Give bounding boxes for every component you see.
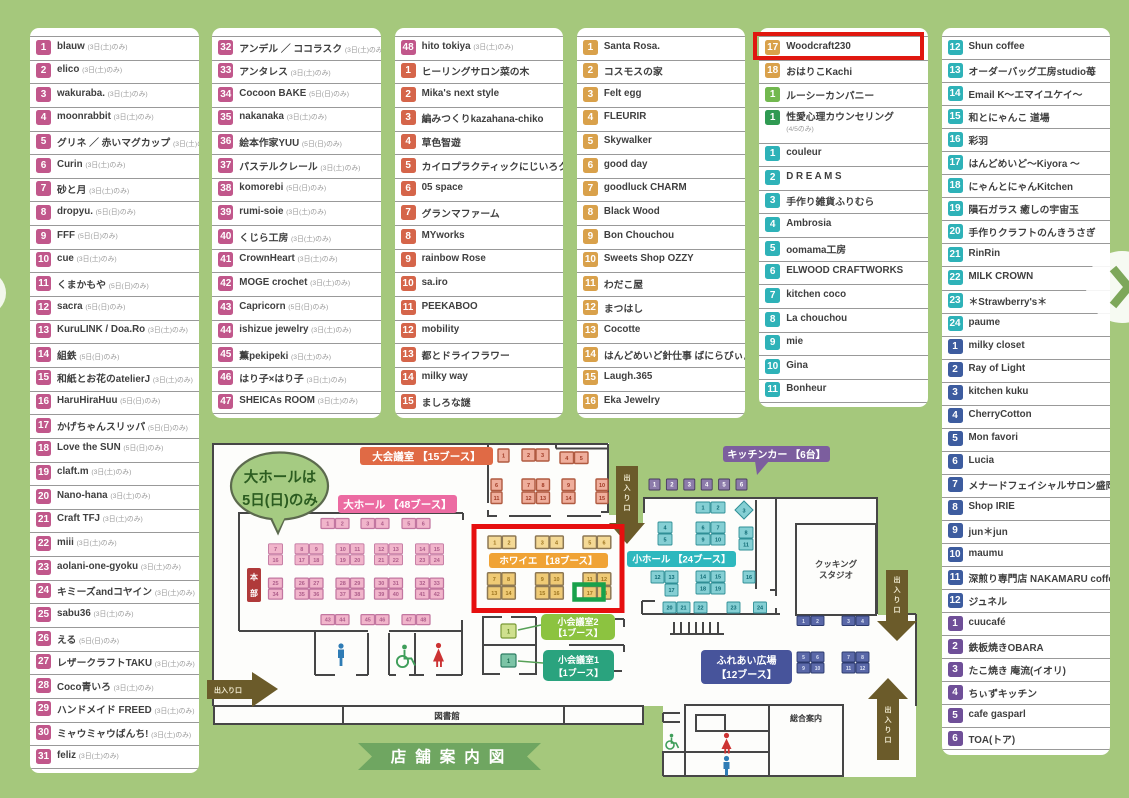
- svg-text:12: 12: [525, 496, 531, 502]
- svg-text:10: 10: [553, 577, 559, 583]
- svg-text:11: 11: [743, 543, 749, 549]
- svg-text:本: 本: [249, 572, 258, 582]
- svg-text:1: 1: [502, 454, 505, 460]
- svg-text:20: 20: [354, 558, 360, 564]
- svg-text:【12ブース】: 【12ブース】: [716, 668, 777, 681]
- svg-text:5: 5: [802, 655, 805, 661]
- svg-text:【1ブース】: 【1ブース】: [554, 667, 604, 678]
- svg-text:7: 7: [274, 547, 277, 553]
- svg-text:スタジオ: スタジオ: [819, 570, 853, 580]
- svg-text:5日(日)のみ: 5日(日)のみ: [242, 492, 318, 509]
- svg-text:8: 8: [507, 577, 510, 583]
- svg-text:出: 出: [894, 575, 901, 584]
- svg-text:11: 11: [846, 666, 852, 672]
- svg-text:21: 21: [680, 606, 686, 612]
- svg-text:1: 1: [701, 506, 704, 512]
- svg-text:3: 3: [847, 619, 850, 625]
- svg-text:口: 口: [624, 504, 631, 512]
- svg-text:34: 34: [272, 592, 279, 598]
- svg-text:11: 11: [494, 496, 500, 502]
- svg-text:36: 36: [313, 592, 319, 598]
- svg-text:16: 16: [553, 591, 559, 597]
- svg-text:11: 11: [587, 577, 593, 583]
- svg-text:14: 14: [700, 575, 707, 581]
- svg-text:4: 4: [861, 619, 864, 625]
- svg-text:8: 8: [541, 483, 544, 489]
- svg-text:3: 3: [366, 522, 369, 528]
- svg-text:44: 44: [339, 618, 346, 624]
- svg-text:10: 10: [715, 538, 721, 544]
- svg-text:5: 5: [588, 540, 591, 546]
- svg-text:入: 入: [884, 716, 892, 724]
- svg-text:26: 26: [299, 581, 305, 587]
- svg-text:28: 28: [340, 581, 346, 587]
- svg-text:2: 2: [716, 506, 719, 512]
- svg-text:3: 3: [541, 540, 544, 546]
- svg-text:47: 47: [406, 618, 412, 624]
- svg-text:8: 8: [744, 531, 747, 537]
- svg-text:16: 16: [272, 558, 278, 564]
- svg-text:39: 39: [378, 592, 384, 598]
- svg-text:キッチンカー 【6台】: キッチンカー 【6台】: [727, 448, 825, 461]
- svg-text:23: 23: [730, 606, 736, 612]
- svg-text:10: 10: [599, 483, 605, 489]
- svg-text:ふれあい広場: ふれあい広場: [717, 654, 777, 667]
- svg-text:14: 14: [419, 547, 426, 553]
- svg-text:18: 18: [313, 558, 319, 564]
- svg-text:46: 46: [379, 618, 385, 624]
- svg-text:3: 3: [742, 509, 745, 515]
- svg-text:17: 17: [587, 591, 593, 597]
- svg-text:15: 15: [599, 496, 605, 502]
- svg-text:43: 43: [325, 618, 331, 624]
- svg-text:30: 30: [378, 581, 384, 587]
- svg-text:6: 6: [701, 526, 704, 532]
- svg-text:図書館: 図書館: [434, 711, 460, 721]
- svg-text:6: 6: [495, 483, 498, 489]
- svg-text:14: 14: [505, 591, 512, 597]
- svg-text:3: 3: [541, 453, 544, 459]
- svg-text:出: 出: [624, 473, 631, 482]
- svg-text:9: 9: [541, 577, 544, 583]
- svg-text:5: 5: [407, 522, 410, 528]
- svg-text:6: 6: [816, 655, 819, 661]
- svg-text:20: 20: [666, 606, 672, 612]
- svg-text:27: 27: [313, 581, 319, 587]
- svg-text:り: り: [624, 493, 631, 502]
- svg-text:小ホール 【24ブース】: 小ホール 【24ブース】: [631, 554, 730, 566]
- svg-text:16: 16: [746, 575, 752, 581]
- svg-text:クッキング: クッキング: [815, 559, 858, 569]
- svg-text:12: 12: [654, 575, 660, 581]
- svg-text:り: り: [894, 595, 901, 604]
- svg-text:2: 2: [527, 453, 530, 459]
- svg-text:2: 2: [816, 619, 819, 625]
- svg-text:31: 31: [393, 581, 399, 587]
- svg-text:19: 19: [340, 558, 346, 564]
- svg-text:7: 7: [847, 655, 850, 661]
- svg-text:2: 2: [341, 522, 344, 528]
- svg-text:15: 15: [434, 547, 440, 553]
- svg-text:出入り口: 出入り口: [214, 686, 242, 695]
- svg-text:40: 40: [393, 592, 399, 598]
- svg-text:24: 24: [434, 558, 441, 564]
- svg-text:小会議室1: 小会議室1: [557, 654, 599, 665]
- svg-text:11: 11: [354, 547, 360, 553]
- svg-text:21: 21: [378, 558, 384, 564]
- svg-text:17: 17: [668, 588, 674, 594]
- svg-text:出: 出: [885, 705, 892, 714]
- svg-text:1: 1: [326, 522, 329, 528]
- svg-text:店舗案内図: 店舗案内図: [391, 747, 514, 766]
- svg-text:8: 8: [861, 655, 864, 661]
- svg-text:13: 13: [491, 591, 497, 597]
- svg-text:19: 19: [715, 587, 721, 593]
- svg-text:33: 33: [434, 581, 440, 587]
- svg-text:5: 5: [663, 538, 666, 544]
- svg-text:9: 9: [802, 666, 805, 672]
- svg-text:大ホールは: 大ホールは: [244, 468, 317, 486]
- svg-text:5: 5: [580, 456, 583, 462]
- svg-text:38: 38: [354, 592, 360, 598]
- svg-text:12: 12: [601, 577, 607, 583]
- svg-text:41: 41: [419, 592, 425, 598]
- svg-text:45: 45: [365, 618, 371, 624]
- svg-text:1: 1: [802, 619, 805, 625]
- svg-text:48: 48: [420, 618, 426, 624]
- svg-text:22: 22: [697, 606, 703, 612]
- svg-text:13: 13: [393, 547, 399, 553]
- svg-text:小会議室2: 小会議室2: [556, 616, 598, 627]
- svg-text:口: 口: [894, 606, 901, 614]
- svg-text:37: 37: [340, 592, 346, 598]
- svg-text:入: 入: [893, 586, 901, 594]
- svg-text:総合案内: 総合案内: [790, 713, 822, 723]
- svg-text:7: 7: [527, 483, 530, 489]
- svg-text:6: 6: [422, 522, 425, 528]
- svg-text:【1ブース】: 【1ブース】: [553, 627, 603, 638]
- svg-text:9: 9: [567, 483, 570, 489]
- svg-text:13: 13: [668, 575, 674, 581]
- svg-text:12: 12: [860, 666, 866, 672]
- svg-text:大ホール 【48ブース】: 大ホール 【48ブース】: [343, 498, 452, 511]
- svg-text:7: 7: [716, 526, 719, 532]
- svg-text:口: 口: [885, 736, 892, 744]
- svg-text:1: 1: [493, 540, 496, 546]
- svg-text:14: 14: [565, 496, 572, 502]
- svg-text:ホワイエ 【18ブース】: ホワイエ 【18ブース】: [499, 555, 597, 567]
- svg-text:大会議室 【15ブース】: 大会議室 【15ブース】: [372, 450, 481, 463]
- svg-text:9: 9: [315, 547, 318, 553]
- svg-text:13: 13: [540, 496, 546, 502]
- svg-text:42: 42: [434, 592, 440, 598]
- svg-text:29: 29: [354, 581, 360, 587]
- svg-text:17: 17: [299, 558, 305, 564]
- svg-text:9: 9: [701, 538, 704, 544]
- svg-text:23: 23: [419, 558, 425, 564]
- svg-text:8: 8: [300, 547, 303, 553]
- svg-text:り: り: [885, 725, 892, 734]
- svg-text:10: 10: [340, 547, 346, 553]
- svg-text:25: 25: [272, 581, 278, 587]
- svg-text:部: 部: [250, 588, 258, 598]
- svg-text:7: 7: [493, 577, 496, 583]
- svg-text:24: 24: [757, 606, 764, 612]
- svg-text:18: 18: [700, 587, 706, 593]
- svg-text:32: 32: [419, 581, 425, 587]
- svg-text:35: 35: [299, 592, 305, 598]
- svg-text:6: 6: [603, 540, 606, 546]
- svg-text:15: 15: [715, 575, 721, 581]
- svg-text:2: 2: [508, 540, 511, 546]
- svg-text:12: 12: [378, 547, 384, 553]
- svg-text:15: 15: [539, 591, 545, 597]
- svg-text:10: 10: [815, 666, 821, 672]
- svg-text:入: 入: [623, 484, 631, 492]
- svg-text:22: 22: [393, 558, 399, 564]
